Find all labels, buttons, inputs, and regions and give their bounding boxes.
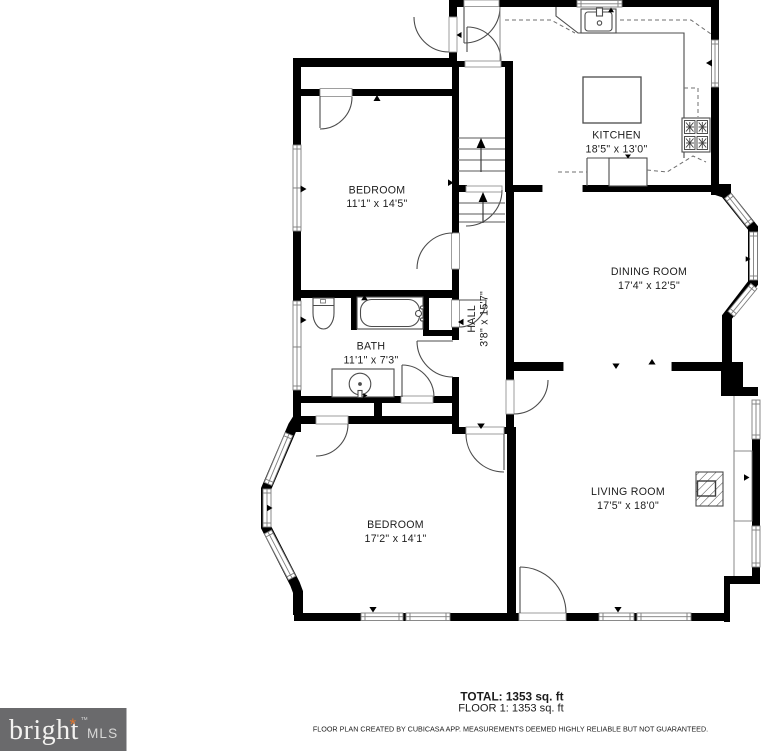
svg-text:17'2" x 14'1": 17'2" x 14'1" <box>365 533 427 545</box>
svg-text:BEDROOM: BEDROOM <box>349 184 406 196</box>
svg-text:FLOOR PLAN CREATED BY CUBICASA: FLOOR PLAN CREATED BY CUBICASA APP. MEAS… <box>313 724 708 733</box>
svg-text:TM: TM <box>81 716 88 721</box>
svg-text:TOTAL: 1353 sq. ft: TOTAL: 1353 sq. ft <box>460 689 563 703</box>
svg-text:18'5" x 13'0": 18'5" x 13'0" <box>586 144 648 156</box>
svg-text:HALL: HALL <box>466 305 478 333</box>
svg-text:11'1" x 7'3": 11'1" x 7'3" <box>343 355 398 367</box>
svg-text:BEDROOM: BEDROOM <box>367 519 424 531</box>
svg-text:LIVING ROOM: LIVING ROOM <box>591 486 665 498</box>
svg-text:17'4" x 12'5": 17'4" x 12'5" <box>618 280 680 292</box>
svg-text:MLS: MLS <box>87 726 118 741</box>
svg-text:DINING ROOM: DINING ROOM <box>611 266 687 278</box>
svg-text:KITCHEN: KITCHEN <box>592 130 641 142</box>
svg-text:3'8" x 15'7": 3'8" x 15'7" <box>479 291 491 347</box>
svg-text:bright: bright <box>9 715 79 746</box>
svg-text:BATH: BATH <box>357 341 386 353</box>
svg-text:11'1" x 14'5": 11'1" x 14'5" <box>346 198 407 210</box>
svg-text:17'5" x 18'0": 17'5" x 18'0" <box>597 500 659 512</box>
svg-text:*: * <box>70 715 77 734</box>
svg-text:FLOOR 1: 1353 sq. ft: FLOOR 1: 1353 sq. ft <box>458 702 563 714</box>
